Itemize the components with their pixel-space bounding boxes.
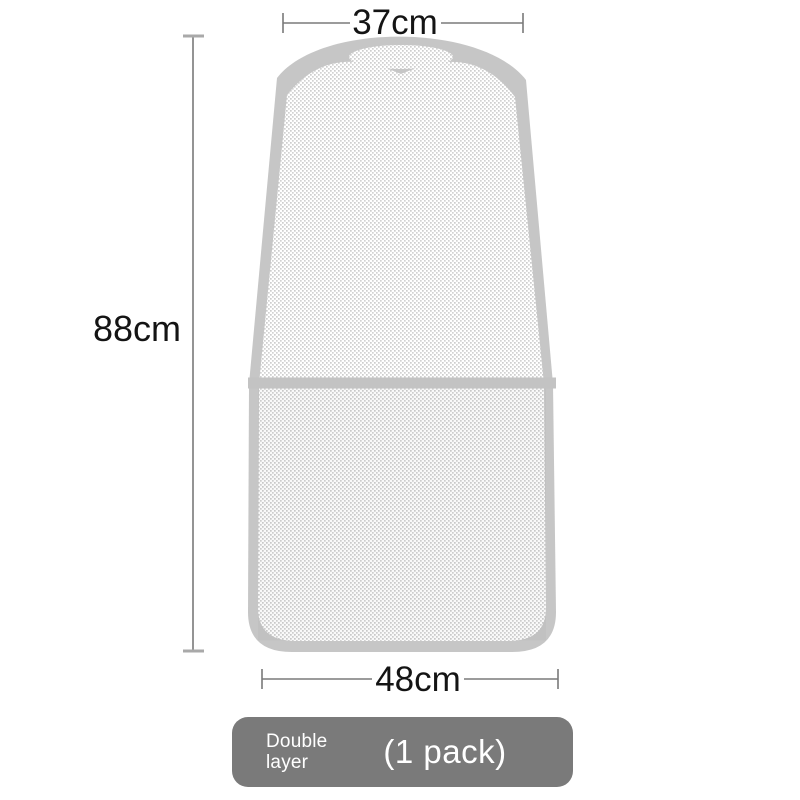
badge-layer-line2: layer	[266, 752, 327, 773]
dim-left-height: 88cm	[93, 36, 204, 651]
dim-left-label: 88cm	[93, 308, 181, 349]
badge-pack-label: (1 pack)	[383, 733, 506, 771]
badge-layer-line1: Double	[266, 731, 327, 752]
dim-top-label: 37cm	[352, 3, 438, 42]
mesh-cover-illustration	[248, 37, 556, 652]
middle-seam	[248, 378, 556, 389]
size-diagram-stage: 37cm 88cm 48cm	[0, 0, 800, 800]
mesh-cover-size-diagram: 37cm 88cm 48cm	[0, 0, 800, 800]
pocket-tint	[258, 389, 546, 641]
dim-bottom-width: 48cm	[262, 660, 558, 699]
dim-top-width: 37cm	[283, 3, 523, 42]
badge-layer-label: Double layer	[266, 731, 327, 773]
dim-bottom-label: 48cm	[375, 660, 461, 699]
pack-badge: Double layer (1 pack)	[232, 717, 573, 787]
handle-opening	[349, 45, 453, 69]
